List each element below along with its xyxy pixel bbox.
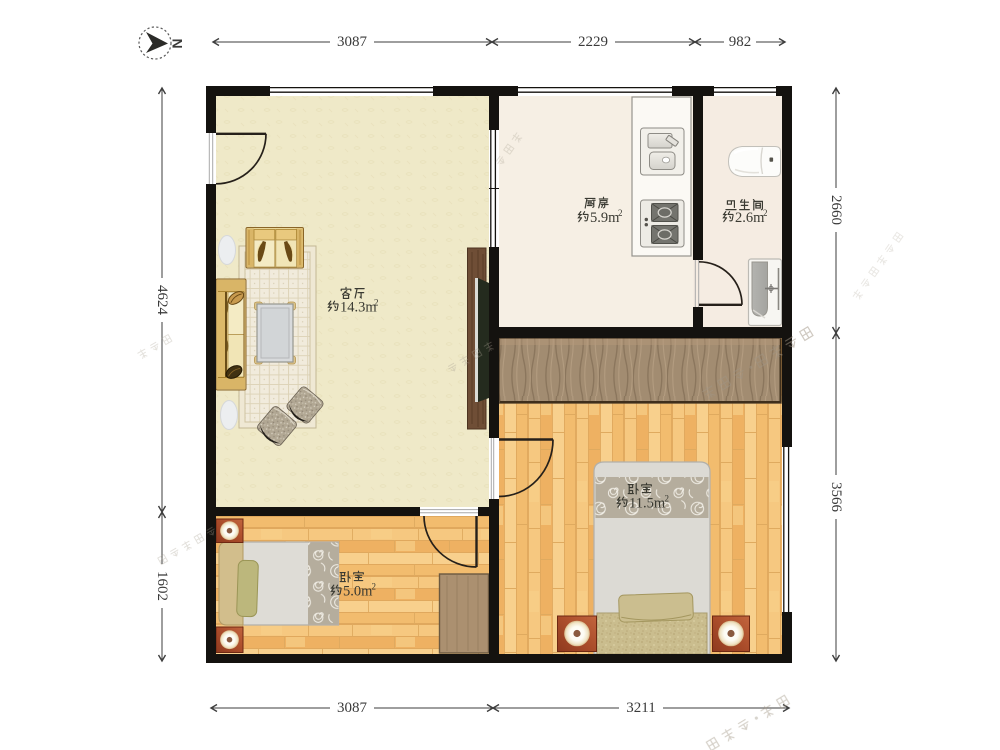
svg-text:3566: 3566 [828,482,844,513]
svg-text:2660: 2660 [828,195,844,225]
svg-text:982: 982 [729,34,752,50]
svg-text:3211: 3211 [626,700,655,716]
svg-text:3087: 3087 [337,700,368,716]
svg-text:5.9m: 5.9m [590,210,620,226]
svg-text:3087: 3087 [337,34,368,50]
svg-text:14.3m: 14.3m [340,300,377,316]
svg-text:2.6m: 2.6m [735,210,765,226]
svg-text:1602: 1602 [154,571,170,601]
svg-text:5.0m: 5.0m [343,584,373,600]
svg-text:2229: 2229 [578,34,608,50]
svg-text:11.5m: 11.5m [629,496,666,512]
svg-text:2: 2 [763,208,768,218]
svg-text:N: N [170,38,186,48]
svg-text:2: 2 [618,208,623,218]
svg-text:2: 2 [374,298,379,308]
svg-text:4624: 4624 [154,285,170,316]
svg-text:2: 2 [665,494,670,504]
svg-text:2: 2 [372,582,377,592]
